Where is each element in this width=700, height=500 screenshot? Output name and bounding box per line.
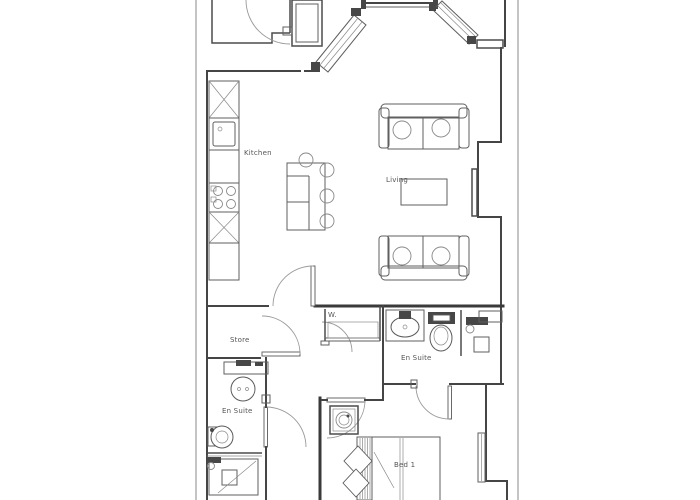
kitchen-island bbox=[287, 153, 334, 230]
tv bbox=[472, 169, 477, 216]
store-door bbox=[262, 316, 300, 356]
ensuite-right-door bbox=[416, 386, 452, 419]
wardrobe-door-arc bbox=[322, 322, 352, 352]
sofa-bottom bbox=[379, 236, 469, 280]
sofa-top bbox=[379, 104, 469, 149]
entry-top-wall bbox=[361, 0, 438, 9]
wash-basin-left bbox=[224, 360, 268, 401]
living-area bbox=[379, 104, 477, 280]
entry-window-left bbox=[311, 8, 366, 72]
wardrobe-label: W. bbox=[328, 311, 337, 319]
shower-left bbox=[207, 457, 258, 495]
bedroom-window bbox=[478, 433, 485, 482]
floor-plan-drawing bbox=[0, 0, 700, 500]
ensuite-left-label: En Suite bbox=[222, 407, 253, 415]
entry-door-arc bbox=[246, 0, 290, 44]
store-label: Store bbox=[230, 336, 250, 344]
double-bed bbox=[343, 437, 440, 500]
ensuite-left-room bbox=[207, 358, 270, 500]
living-label: Living bbox=[386, 176, 408, 184]
site-boundaries bbox=[196, 0, 518, 500]
kitchen-hob bbox=[209, 183, 239, 212]
wash-basin-right bbox=[386, 310, 424, 341]
bedroom-label: Bed 1 bbox=[394, 461, 415, 469]
bar-stool bbox=[299, 153, 313, 167]
living-hall-door bbox=[273, 266, 315, 306]
entry-cupboard bbox=[283, 0, 322, 46]
bar-stool bbox=[320, 214, 334, 228]
kitchen-sink bbox=[209, 118, 239, 150]
kitchen-label: Kitchen bbox=[244, 149, 272, 157]
entry-area bbox=[246, 0, 505, 72]
ensuite-left-door bbox=[264, 407, 306, 447]
ensuite-right-label: En Suite bbox=[401, 354, 432, 362]
bar-stool bbox=[320, 163, 334, 177]
ensuite-right-room bbox=[383, 306, 503, 388]
bar-stool bbox=[320, 189, 334, 203]
toilet-right bbox=[428, 312, 455, 351]
shower-right bbox=[466, 311, 502, 352]
floor-plan: Kitchen Living Store W. En Suite En Suit… bbox=[0, 0, 700, 500]
kitchen-counter bbox=[209, 81, 239, 280]
washing-machine bbox=[330, 406, 358, 434]
entry-ledge bbox=[477, 40, 503, 48]
toilet-left bbox=[208, 426, 233, 448]
